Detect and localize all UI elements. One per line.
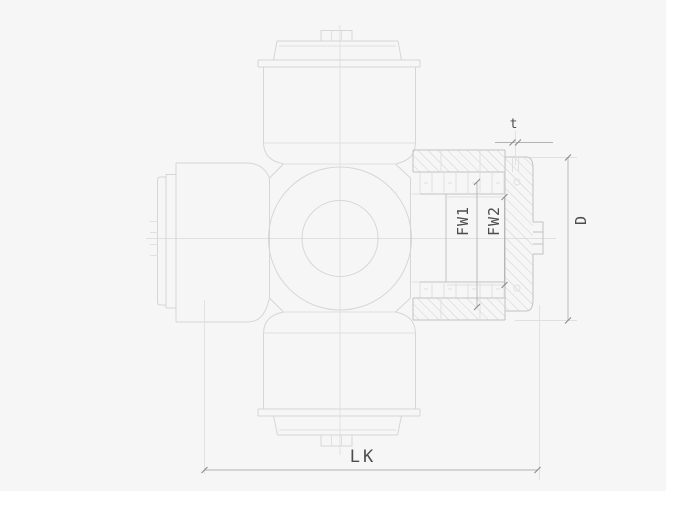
needle-rollers-top: [420, 173, 504, 194]
centerlines: [146, 25, 556, 455]
grease-fitting-boss: [533, 222, 543, 254]
top-cap-tabs: [321, 31, 352, 42]
top-bearing-cup: [258, 31, 420, 165]
paper-edge-bottom: [0, 491, 673, 514]
label-t: t: [510, 117, 519, 132]
dim-fw1: FW1: [454, 179, 480, 310]
label-fw2: FW2: [485, 206, 503, 236]
label-lk: LK: [350, 447, 376, 467]
dim-fw2: FW2: [485, 194, 508, 288]
bottom-cap: [274, 416, 402, 435]
cup-wall-bottom-hatch: [413, 298, 505, 320]
cup-wall-top-hatch: [413, 150, 505, 172]
needle-rollers-bottom: [420, 282, 504, 298]
bottom-cap-tabs: [321, 435, 352, 446]
label-fw1: FW1: [454, 206, 472, 236]
paper-edge-right: [666, 0, 673, 491]
left-flange: [166, 175, 176, 309]
top-cap: [274, 41, 402, 60]
label-d: D: [572, 215, 590, 225]
technical-drawing-canvas: t FW1 FW2 D LK: [0, 0, 673, 514]
bottom-bearing-cup: [258, 312, 420, 446]
top-flange: [258, 60, 420, 67]
left-bearing-cup: [150, 163, 269, 322]
left-cap: [158, 177, 167, 305]
universal-joint-cross-drawing: t FW1 FW2 D LK: [0, 0, 673, 514]
dim-lk: LK: [202, 300, 541, 480]
bottom-flange: [258, 409, 420, 416]
right-bearing-section: [412, 150, 543, 320]
